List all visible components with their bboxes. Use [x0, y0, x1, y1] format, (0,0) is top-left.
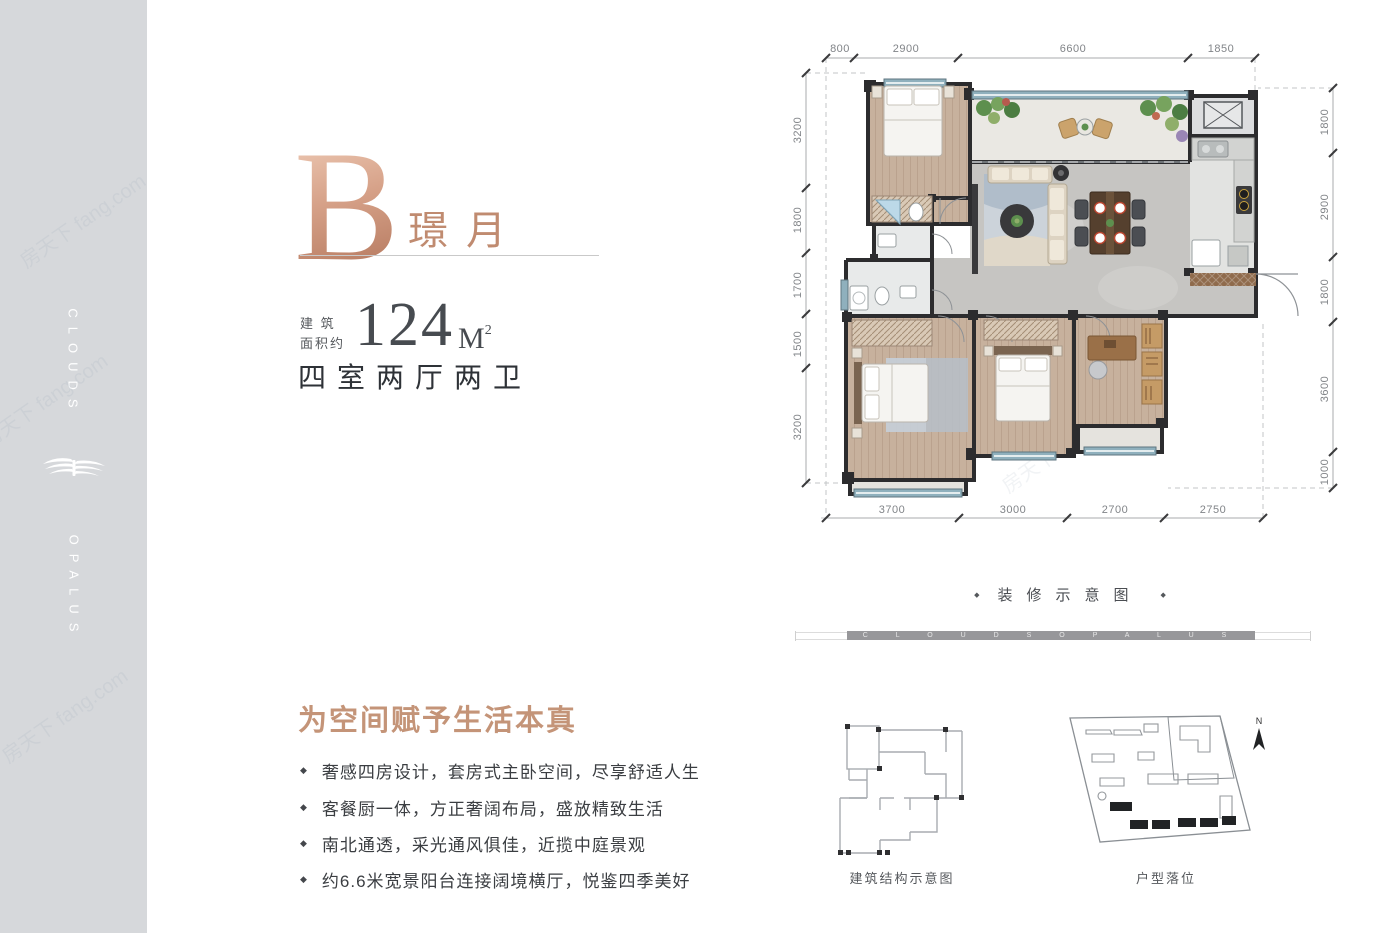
kitchen-cabinet [1190, 273, 1256, 286]
dimension-label: 1000 [1319, 459, 1331, 485]
feature-item: ◆ 客餐厨一体，方正奢阔布局，盛放精致生活 [300, 795, 664, 820]
dimension-label: 3200 [792, 117, 804, 143]
dimension-label: 1800 [1319, 109, 1331, 135]
brand-bar-cap [795, 631, 796, 641]
area-prefix-line1: 建 筑 [300, 314, 345, 334]
brand-bar-text: C L O U D S O P A L U S [847, 631, 1255, 640]
brand-opalus-text: OPALUS [66, 535, 81, 641]
diamond-bullet-icon: ◆ [300, 838, 308, 849]
bedroom3-headboard [994, 346, 1052, 355]
unit-name: 璟月 [408, 198, 524, 256]
dimension-label: 3700 [879, 504, 905, 516]
plan-caption: ◆装修示意图◆ [790, 584, 1350, 605]
brand-bar: C L O U D S O P A L U S [795, 628, 1311, 644]
dimension-label: 1800 [792, 207, 804, 233]
dimension-label: 6600 [1060, 43, 1086, 55]
page: CLOUDS OPALUS 房天下 fang.com 房天下 fang.com … [0, 0, 1400, 933]
dimension-label: 3200 [792, 414, 804, 440]
bedroom2-headboard [854, 362, 862, 424]
area-value: 124 [355, 298, 454, 354]
kitchen-table [1228, 246, 1248, 266]
highlighted-buildings [1110, 802, 1236, 829]
dimension-label: 2700 [1102, 504, 1128, 516]
area-prefix-line2: 面积约 [300, 334, 345, 354]
dimension-label: 3000 [1000, 504, 1026, 516]
brand-clouds-text: CLOUDS [66, 308, 81, 416]
dimension-label: 2750 [1200, 504, 1226, 516]
site-location-diagram: N [1052, 708, 1272, 860]
diamond-icon: ◆ [974, 592, 979, 599]
dimension-label: 1850 [1208, 43, 1234, 55]
unit-letter: B [294, 128, 399, 286]
dimension-label: 1800 [1319, 279, 1331, 305]
dimension-label: 1700 [792, 272, 804, 298]
brand-opalus: OPALUS [0, 580, 147, 595]
plan-caption-text: 装修示意图 [997, 587, 1142, 604]
floorplan-drawing: 800 2900 6600 1850 3700 3000 2700 2750 3… [788, 28, 1358, 540]
feature-text: 南北通透，采光通风俱佳，近揽中庭景观 [322, 831, 646, 856]
features-heading: 为空间赋予生活本真 [298, 697, 577, 739]
site-diagram-label: 户型落位 [1086, 868, 1246, 887]
bedroom3-furniture [984, 320, 1062, 421]
tv-wall [972, 184, 978, 274]
area-superscript: 2 [485, 323, 492, 338]
building-outlines [1086, 724, 1232, 818]
structure-diagram-label: 建筑结构示意图 [812, 868, 992, 887]
compass: N [1253, 716, 1265, 750]
desk-chair [1089, 361, 1107, 379]
diamond-bullet-icon: ◆ [300, 802, 308, 813]
dishwasher [1192, 240, 1220, 266]
area-prefix: 建 筑 面积约 [300, 314, 345, 354]
dimension-label: 3600 [1319, 376, 1331, 402]
structure-diagram [822, 710, 972, 862]
area-unit-letter: M [458, 322, 485, 355]
brand-bar-cap [1310, 631, 1311, 641]
area-row: 建 筑 面积约 124 M2 [300, 298, 492, 354]
diamond-icon: ◆ [1161, 592, 1166, 599]
diamond-bullet-icon: ◆ [300, 874, 308, 885]
feature-text: 客餐厨一体，方正奢阔布局，盛放精致生活 [322, 795, 664, 820]
elevator-shaft [1204, 102, 1242, 128]
feature-item: ◆ 奢感四房设计，套房式主卧空间，尽享舒适人生 [300, 758, 700, 783]
feature-item: ◆ 约6.6米宽景阳台连接阔境横厅，悦鉴四季美好 [300, 867, 691, 892]
bath-window [841, 280, 848, 310]
area-unit: M2 [458, 324, 492, 354]
brand-wings-logo [41, 448, 107, 487]
title-divider [300, 255, 599, 256]
dimension-label: 2900 [893, 43, 919, 55]
dimension-label: 1500 [792, 331, 804, 357]
layout-text: 四室两厅两卫 [298, 356, 532, 396]
sidebar: CLOUDS OPALUS [0, 0, 147, 933]
compass-needle-icon [1253, 728, 1265, 750]
dimension-label: 800 [830, 43, 850, 55]
feature-text: 奢感四房设计，套房式主卧空间，尽享舒适人生 [322, 758, 700, 783]
feature-item: ◆ 南北通透，采光通风俱佳，近揽中庭景观 [300, 831, 646, 856]
compass-label: N [1256, 716, 1263, 726]
brand-clouds: CLOUDS [0, 355, 147, 370]
feature-text: 约6.6米宽景阳台连接阔境横厅，悦鉴四季美好 [322, 867, 691, 892]
diamond-bullet-icon: ◆ [300, 765, 308, 776]
dimension-label: 2900 [1319, 194, 1331, 220]
